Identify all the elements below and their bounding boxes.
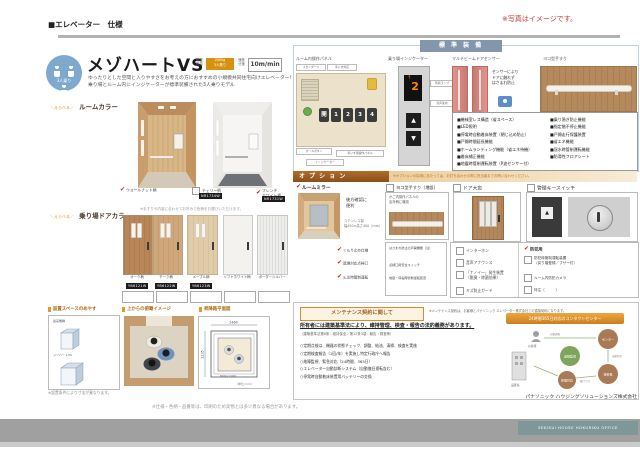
feature-item: ■冠水時管制運転機能 <box>550 146 590 153</box>
feature-item: ■LED照明 <box>457 123 532 130</box>
feature-item: ■乗り過ぎ防止機能 <box>550 116 590 123</box>
door-color-note: ※手すりや内装に合わせてお好みで色柄をお選びいただけます。 <box>140 207 243 211</box>
product-description-2: 乗り場とルーム内にインジケーターが標準装備された3人乗りモデル <box>88 83 235 89</box>
panel-tag-2: 車いす対応 <box>327 64 357 71</box>
standard-features-box: ■機械室レス構造（省スペース） ■LED照明 ■停電時自動着床装置（閉じ込め防止… <box>452 112 638 171</box>
selection-cell[interactable] <box>258 291 290 303</box>
diagram-customer-label: お客様 <box>528 344 537 348</box>
panel-tag-1: スタンダード <box>296 64 326 71</box>
door-code-3: YB6123W <box>190 283 212 289</box>
plan-dim-width: 1460 <box>229 321 238 325</box>
option-mirror-header: ✔ルームミラー <box>296 184 331 191</box>
mirror-check-3: ✔火災時管制運転 <box>337 274 368 281</box>
standard-equipment-header: 標 準 装 備 <box>420 40 502 52</box>
key-switch-button-icon: ▲ <box>541 207 553 219</box>
room-color-label: ルームカラー <box>79 103 118 111</box>
feature-item: ■省エネ機能 <box>550 138 590 145</box>
indicator-column-label: 乗り場インジケーター <box>388 57 428 62</box>
footer-strip <box>0 442 640 447</box>
door-sensor-image-left <box>452 66 468 114</box>
safety-item-3: 地震・停電時管制運転装置 <box>389 276 443 280</box>
hall-call-down-button[interactable]: ▼ <box>406 131 421 146</box>
diagram-contact-label: センター <box>602 337 614 342</box>
door-selection-row <box>122 291 292 303</box>
contact-center-header: 24時間365日対応のコンタクトセンター <box>506 313 624 324</box>
option-security-header: ✔防犯用 <box>524 246 543 253</box>
option-custom: 特注（ ） <box>524 286 559 294</box>
room-color-heading: ＼えらべる／ ルームカラー <box>50 95 118 113</box>
overhead-view-title: 上からの俯瞰イメージ <box>122 307 171 312</box>
option-door-window-header: ドア大窓 <box>453 184 482 192</box>
features-left-column: ■機械室レス構造（省スペース） ■LED照明 ■停電時自動着床装置（閉じ込め防止… <box>457 116 532 168</box>
option-mirror-caption: 後方確認に 便利 <box>346 197 367 210</box>
spec2-label: 速度 分速 <box>238 59 245 67</box>
diagram-service-label: 技術員 <box>603 372 612 377</box>
space-item-1-label: 従来機種 <box>53 320 65 323</box>
space-item-1-icon <box>57 327 81 351</box>
page-title: ■エレベーター 仕様 <box>48 21 123 30</box>
check-icon: ✔ <box>337 246 342 253</box>
bottom-note-left: ※設置条件により寸法が異なります。 <box>48 391 111 395</box>
checkbox-icon[interactable] <box>456 247 464 255</box>
list-divider <box>518 243 519 297</box>
option-door-window-box <box>453 192 521 242</box>
product-title: メゾハートVS <box>87 57 204 77</box>
option-mirror-spec: ステンレス製 幅450×高さ400（mm） <box>344 219 382 229</box>
checkbox-icon[interactable] <box>386 184 394 192</box>
indicator-display: ↑2 <box>404 75 422 101</box>
options-header: オ プ シ ョ ン <box>299 171 346 182</box>
product-description-1: ゆったりとした空間と入りやすさをお考えの方におすすめの小規模共同住宅向けエレベー… <box>88 76 294 82</box>
color-code-badge: NR1731W <box>262 196 285 202</box>
selectable-tag: ＼えらべる／ <box>50 214 74 219</box>
maintenance-items: ○定期点検は、機器の状態チェック、調整、給油、清掃、検査を実施 ○定期検査報告（… <box>300 342 417 381</box>
feature-item: ■指定階不停止機能 <box>550 123 590 130</box>
spec-sheet-page: ■エレベーター 仕様 ※写真はイメージです。 3人乗り メゾハートVS 積載 質… <box>0 0 640 452</box>
checkbox-icon[interactable] <box>524 274 532 282</box>
diagram-annotation-2: 出動指示 <box>612 354 623 358</box>
capacity-spec-badge: 200kg 3人乗り <box>206 58 234 70</box>
hoistway-plan-title: 昇降路平面図 <box>199 307 230 312</box>
sensor-icon <box>498 96 512 107</box>
space-box-title: 設置スペースのめやす <box>48 307 96 312</box>
check-icon: ✔ <box>337 259 342 266</box>
selection-cell[interactable] <box>224 291 256 303</box>
diagram-building-label: 設置先 <box>511 383 520 387</box>
maintenance-item: ○故障監視、緊急対応（24時間、365日） <box>300 358 417 366</box>
features-right-column: ■乗り過ぎ防止機能 ■指定階不停止機能 ■戸開走行保護装置 ■省エネ機能 ■冠水… <box>550 116 590 160</box>
option-mirror-image <box>296 193 342 245</box>
checkbox-icon[interactable] <box>456 271 464 279</box>
options-header-bar: オ プ シ ョ ン <box>293 171 389 182</box>
check-icon[interactable]: ✔ <box>120 186 125 193</box>
indicator-callout-2: 音声案内 <box>430 100 454 107</box>
door-color-heading: ＼えらべる／ 乗り場ドアカラー <box>50 204 131 222</box>
intercom-grill-icon <box>301 79 319 101</box>
panel-callout-1: ホールボタン <box>296 148 332 155</box>
overhead-view-image <box>124 316 194 390</box>
maintenance-item: ○エレベーター自動診断システム（自動復旧運転含む） <box>300 365 417 373</box>
sensor-column-label: マルチビームドアセンサー <box>452 57 500 62</box>
option-key-switch-panel-image: ▲ <box>532 197 562 237</box>
option-handrail-photo <box>389 212 444 235</box>
maintenance-item: ○定期検査報告（1回/年）を実施し特定行政庁へ報告 <box>300 350 417 358</box>
option-handrail-box: かご内操作パネルの 反対側に増設 <box>385 192 449 240</box>
photo-disclaimer: ※写真はイメージです。 <box>502 15 577 23</box>
floor-keys[interactable]: 開1234 <box>319 101 379 122</box>
selectable-tag: ＼えらべる／ <box>50 105 74 110</box>
option-camera: ルーム内防犯カメラ <box>524 274 566 282</box>
hall-call-up-button[interactable]: ▲ <box>406 113 421 128</box>
maintenance-law: （建築基準法第8条：維持保全／第12条3項：報告・検査等） <box>300 333 393 337</box>
option-guard: キズ防止ガード <box>456 287 493 295</box>
diagram-repair-label: 修理対応 <box>561 378 573 383</box>
diagram-annotation-1: 自動通報 <box>550 332 561 336</box>
option-key-cylinder-image <box>568 197 630 237</box>
door-code-2: YB6122W <box>155 283 177 289</box>
checkbox-icon[interactable] <box>456 287 464 295</box>
selection-cell[interactable] <box>122 291 154 303</box>
maintenance-box: メンテナンス契約に関して ※メンテナンス契約は、お客様とパナソニック エレベータ… <box>293 302 639 400</box>
panel-column-label: ルーム内操作パネル <box>296 57 332 62</box>
option-key-switch-header: 管理キースイッチ <box>527 184 575 192</box>
check-icon[interactable]: ✔ <box>296 183 301 190</box>
selection-cell[interactable] <box>156 291 188 303</box>
plan-dim-depth: 1235 <box>201 350 205 359</box>
door-name-5: ボーダーシルバー <box>249 276 295 280</box>
panel-callout-3: 車いす用操作パネル <box>336 150 384 157</box>
option-security-drive: 防犯時管制運転装置 （戻り階登録／ブザー付） <box>524 256 577 265</box>
space-item-2-icon <box>57 361 85 387</box>
alarm-button-icon[interactable] <box>367 78 377 90</box>
option-handrail-caption: かご内操作パネルの 反対側に増設 <box>389 195 419 205</box>
feature-item: ■着床補正機能 <box>457 153 532 160</box>
door-name-2: チーク柄 <box>146 276 186 280</box>
check-icon[interactable]: ✔ <box>524 245 529 252</box>
cab-image-white <box>211 102 274 196</box>
door-code-1: YB6121W <box>126 283 148 289</box>
diagram-annotation-3: 駆けつけ <box>580 379 591 383</box>
feature-item: ■戸開時間延長機能 <box>457 138 532 145</box>
option-handrail-header: ヨコ型手すり（増設） <box>386 184 438 192</box>
maintenance-duty: 所有者には建築基準法により、維持管理、検査・報告の法的義務があります。 <box>300 324 474 330</box>
header-rule <box>58 35 620 38</box>
color-code-badge: NR1734W <box>199 193 222 199</box>
capacity-label: 3人乗り <box>46 79 82 84</box>
feature-item: ■防滑性フロアシート <box>550 153 590 160</box>
option-safety-box: はさまれ防止の戸開機能（注） 点検口用安全スイッチ 地震・停電時管制運転装置 <box>385 242 447 296</box>
feature-item: ■停電時自動着床装置（閉じ込め防止） <box>457 131 532 138</box>
check-icon[interactable]: ✔ <box>256 189 261 196</box>
option-voice: 音声アナウンス <box>456 259 492 267</box>
car-panel-image: 開1234 <box>296 73 386 147</box>
speed-spec-badge: 10m/min <box>248 58 282 72</box>
door-open-button-icon[interactable] <box>303 107 312 116</box>
space-box: 従来機種 メゾハートVS <box>48 315 120 390</box>
hoistway-plan-image: 1460 1235 800×1100 （単位:mm） <box>198 316 270 389</box>
diagram-center-label: 遠隔監視 <box>564 354 576 359</box>
door-sensor-image-right <box>472 66 488 114</box>
option-intercom: インターホン <box>456 247 489 255</box>
space-item-2-label: メゾハートVS <box>53 354 72 357</box>
door-swatch-4 <box>223 215 253 275</box>
company-name: パナソニック ハウジングソリューションズ株式会社 <box>452 395 637 401</box>
check-icon: ✔ <box>337 273 342 280</box>
feature-item: ■地震時管制運転装置（P波センサー付） <box>457 160 532 167</box>
options-note: ※オプションの採用にあたっては、お打ち合わせの際に担当者までお問い合わせください… <box>393 171 531 182</box>
room-color-option-1: ✔ウォールナット柄 <box>120 187 156 194</box>
indicator-callout-1: 到着ランプ <box>430 80 454 87</box>
handrail-photo <box>540 66 637 112</box>
plan-unit: （単位:mm） <box>235 381 254 386</box>
option-door-window-image <box>472 196 504 240</box>
cab-image-wood <box>136 102 198 196</box>
options-note-bar: ※オプションの採用にあたっては、お打ち合わせの際に担当者までお問い合わせください… <box>389 171 637 182</box>
capacity-badge: 3人乗り <box>46 55 82 91</box>
feature-item: ■戸開走行保護装置 <box>550 131 590 138</box>
safety-item-2: 点検口用安全スイッチ <box>389 263 443 267</box>
feature-item: ■機械室レス構造（省スペース） <box>457 116 532 123</box>
option-lists-box: インターホン 音声アナウンス 「ナノイー」発生装置 （脱臭・除菌効果） キズ防止… <box>450 242 639 298</box>
contact-center-diagram: お客様 設置先 センター 遠隔監視 技術員 修理対応 自動通報 出動指示 駆けつ… <box>506 326 632 398</box>
door-swatch-2 <box>152 215 183 275</box>
option-nanoe: 「ナノイー」発生装置 （脱臭・除菌効果） <box>456 271 504 281</box>
footer-bar: SEKISUI HOUSE HOKURIKU OFFICE <box>0 419 640 442</box>
panel-callout-2: インジケーター <box>306 159 344 166</box>
office-label: SEKISUI HOUSE HOKURIKU OFFICE <box>518 421 638 435</box>
maintenance-item: ○停電時自動着床装置用バッテリーの交換 <box>300 373 417 381</box>
checkbox-icon[interactable] <box>524 286 532 294</box>
hall-indicator-image: ↑2 ▲ ▼ <box>398 66 430 166</box>
plan-dim-inner: 800×1100 <box>220 374 236 378</box>
maintenance-item: ○定期点検は、機器の状態チェック、調整、給油、清掃、検査を実施 <box>300 342 417 350</box>
maintenance-header-button: メンテナンス契約に関して <box>300 307 424 321</box>
option-key-switch-box: ▲ <box>526 192 638 242</box>
mirror-check-2: ✔遮煙対応点検口 <box>337 260 368 267</box>
checkbox-icon[interactable] <box>524 256 532 264</box>
checkbox-icon[interactable] <box>527 184 535 192</box>
feature-item: ■ホームランディング機能（省エネ待機） <box>457 146 532 153</box>
handrail-column-label: ヨコ型手すり <box>543 57 567 62</box>
indicator-floor: 2 <box>411 80 419 93</box>
persons-icon <box>52 62 76 74</box>
door-swatch-1 <box>123 215 153 275</box>
safety-item-1: はさまれ防止の戸開機能（注） <box>389 246 443 250</box>
checkbox-icon[interactable] <box>456 259 464 267</box>
mirror-check-1: ✔くもり止め仕様 <box>337 247 368 254</box>
door-swatch-3 <box>187 215 218 275</box>
selection-cell[interactable] <box>190 291 222 303</box>
sensor-caption: センサーにより ドアに触れず はさまれ防止 <box>492 69 519 86</box>
spec1-label: 積載 質量 <box>196 59 203 67</box>
checkbox-icon[interactable] <box>453 184 461 192</box>
bottom-note-center: ※仕様・色柄・品番等は、印刷のため実物とは多少異なる場合があります。 <box>152 405 300 410</box>
door-swatch-5 <box>257 215 288 275</box>
